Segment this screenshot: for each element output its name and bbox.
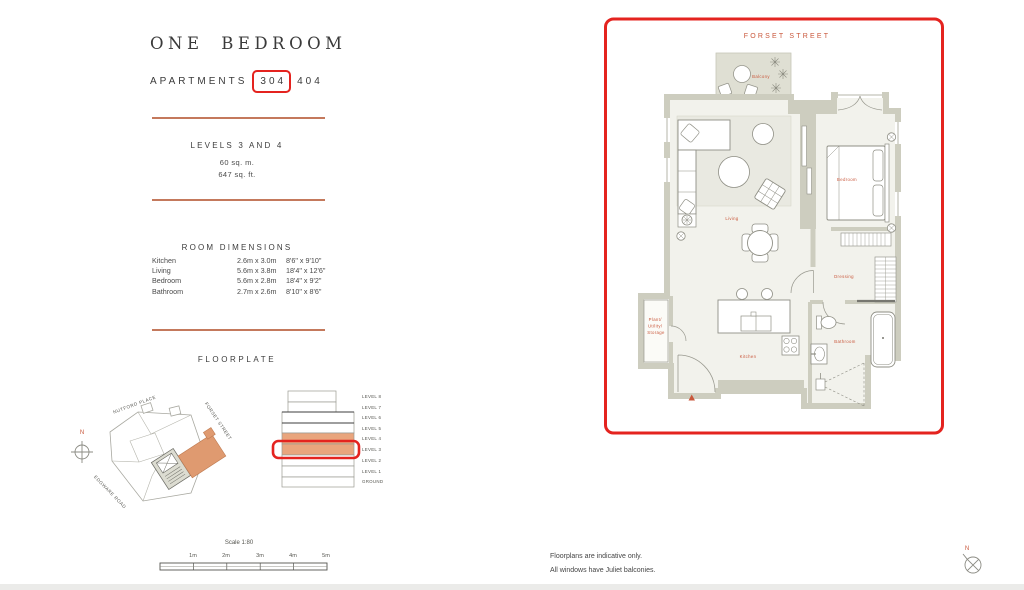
pillow [873, 185, 883, 216]
bar-stool [762, 289, 773, 300]
north-label: N [80, 430, 84, 436]
bedroom: Bedroom [827, 133, 896, 232]
level-label: LEVEL 1 [362, 469, 382, 474]
floorplate-heading: FLOORPLATE [148, 355, 326, 364]
room-dimensions-table: Kitchen 2.6m x 3.0m 8'6" x 9'10" Living … [152, 255, 338, 297]
apartments-label: APARTMENTS [150, 76, 247, 87]
level-label: LEVEL 6 [362, 415, 382, 420]
divider-rule-1 [152, 117, 325, 119]
table-row: Living 5.6m x 3.8m 18'4" x 12'6" [152, 265, 338, 275]
vent-icon [887, 133, 895, 141]
scale-bar: Scale 1:80 1m 2m 3m 4m 5m [150, 530, 340, 578]
page-bottom-strip [0, 584, 1024, 590]
cooktop-icon [782, 336, 799, 355]
levels-heading: LEVELS 3 AND 4 [148, 141, 326, 150]
level-label: LEVEL 5 [362, 426, 382, 431]
table-row: Bedroom 5.6m x 2.8m 18'4" x 9'2" [152, 276, 338, 286]
footer-disclaimer: Floorplans are indicative only. All wind… [550, 550, 655, 577]
dressing-label: Dressing [834, 274, 854, 279]
vent-icon [677, 232, 685, 240]
level-label: LEVEL 8 [362, 394, 382, 399]
room-metric: 5.6m x 3.8m [237, 266, 286, 275]
room-name: Bathroom [152, 287, 237, 296]
room-imperial: 8'10" x 8'6" [286, 287, 338, 296]
area-metric: 60 sq. m. [148, 157, 326, 169]
room-metric: 2.6m x 3.0m [237, 256, 286, 265]
storage-label: Plant/ Utility/ Storage [647, 317, 665, 335]
footer-line-2: All windows have Juliet balconies. [550, 564, 655, 578]
balcony-table [734, 66, 751, 83]
room-metric: 5.6m x 2.8m [237, 276, 286, 285]
forset-street-label: FORSET STREET [744, 33, 830, 40]
room-imperial: 18'4" x 12'6" [286, 266, 338, 275]
site-map: N NUTFORD PLACE FORSET STREET EDGWARE RO… [55, 385, 255, 520]
wall-segment [788, 100, 836, 111]
round-rug [719, 157, 750, 188]
wardrobe [841, 233, 891, 246]
scale-ruler [160, 563, 327, 570]
vent-icon [887, 224, 895, 232]
level-label: LEVEL 7 [362, 405, 382, 410]
table-row: Kitchen 2.6m x 3.0m 8'6" x 9'10" [152, 255, 338, 265]
bar-stool [737, 289, 748, 300]
room-imperial: 18'4" x 9'2" [286, 276, 338, 285]
room-name: Kitchen [152, 256, 237, 265]
level-label: LEVEL 4 [362, 436, 382, 441]
basin-icon [811, 344, 827, 364]
storage-label-line: Storage [647, 330, 665, 335]
living-label: Living [725, 216, 739, 221]
room-dimensions-heading: ROOM DIMENSIONS [148, 243, 326, 252]
divider-rule-3 [152, 329, 325, 331]
dining-table [748, 231, 773, 256]
tick-label: 1m [189, 553, 197, 559]
headboard [885, 144, 889, 222]
kitchen-label: Kitchen [740, 354, 757, 359]
scale-tick-labels: 1m 2m 3m 4m 5m [189, 553, 330, 559]
plant-pot-icon [682, 215, 692, 225]
level-label: LEVEL 2 [362, 458, 382, 463]
north-label: N [965, 546, 969, 552]
floor-plan: FORSET STREET Balcony [595, 10, 955, 450]
divider-rule-2 [152, 199, 325, 201]
bathtub-icon [871, 312, 895, 367]
levels-block: LEVELS 3 AND 4 60 sq. m. 647 sq. ft. [148, 141, 326, 180]
scale-label: Scale 1:80 [225, 540, 254, 546]
balcony-label: Balcony [752, 74, 770, 79]
apartment-404-label: 404 [297, 76, 323, 87]
tv-unit [802, 126, 807, 166]
wall-segment [718, 380, 804, 391]
footer-line-1: Floorplans are indicative only. [550, 550, 655, 564]
room-name: Bedroom [152, 276, 237, 285]
brochure-page: ONE BEDROOM APARTMENTS 304 404 LEVELS 3 … [0, 0, 1024, 590]
plan-compass: N [950, 535, 1010, 585]
storage-label-line: Plant/ [649, 317, 663, 322]
tick-label: 5m [322, 553, 330, 559]
apartment-304-highlight-box: 304 [252, 70, 291, 93]
tick-label: 4m [289, 553, 297, 559]
shelf-unit [807, 168, 812, 194]
compass-icon [963, 554, 981, 573]
room-imperial: 8'6" x 9'10" [286, 256, 338, 265]
room-metric: 2.7m x 2.6m [237, 287, 286, 296]
room-name: Living [152, 266, 237, 275]
pillow [873, 150, 883, 181]
level-label: GROUND [362, 479, 383, 484]
coffee-table [753, 124, 774, 145]
table-row: Bathroom 2.7m x 2.6m 8'10" x 8'6" [152, 286, 338, 296]
room-dimensions-heading-wrap: ROOM DIMENSIONS [148, 243, 326, 252]
apartments-subtitle: APARTMENTS 304 404 [150, 70, 323, 93]
level-labels: LEVEL 8 LEVEL 7 LEVEL 6 LEVEL 5 LEVEL 4 … [362, 394, 383, 484]
tick-label: 3m [256, 553, 264, 559]
area-imperial: 647 sq. ft. [148, 169, 326, 181]
bedroom-label: Bedroom [837, 177, 857, 182]
tick-label: 2m [222, 553, 230, 559]
level-stack-diagram: LEVEL 8 LEVEL 7 LEVEL 6 LEVEL 5 LEVEL 4 … [265, 382, 410, 497]
bathroom-label: Bathroom [834, 339, 855, 344]
street-label-edgware: EDGWARE ROAD [93, 474, 127, 509]
level-bars [282, 391, 354, 487]
page-title: ONE BEDROOM [150, 34, 347, 53]
compass-icon [71, 441, 93, 463]
toilet-icon [821, 317, 836, 329]
floorplate-heading-wrap: FLOORPLATE [148, 355, 326, 364]
storage-label-line: Utility/ [648, 324, 663, 329]
level-label: LEVEL 3 [362, 447, 382, 452]
